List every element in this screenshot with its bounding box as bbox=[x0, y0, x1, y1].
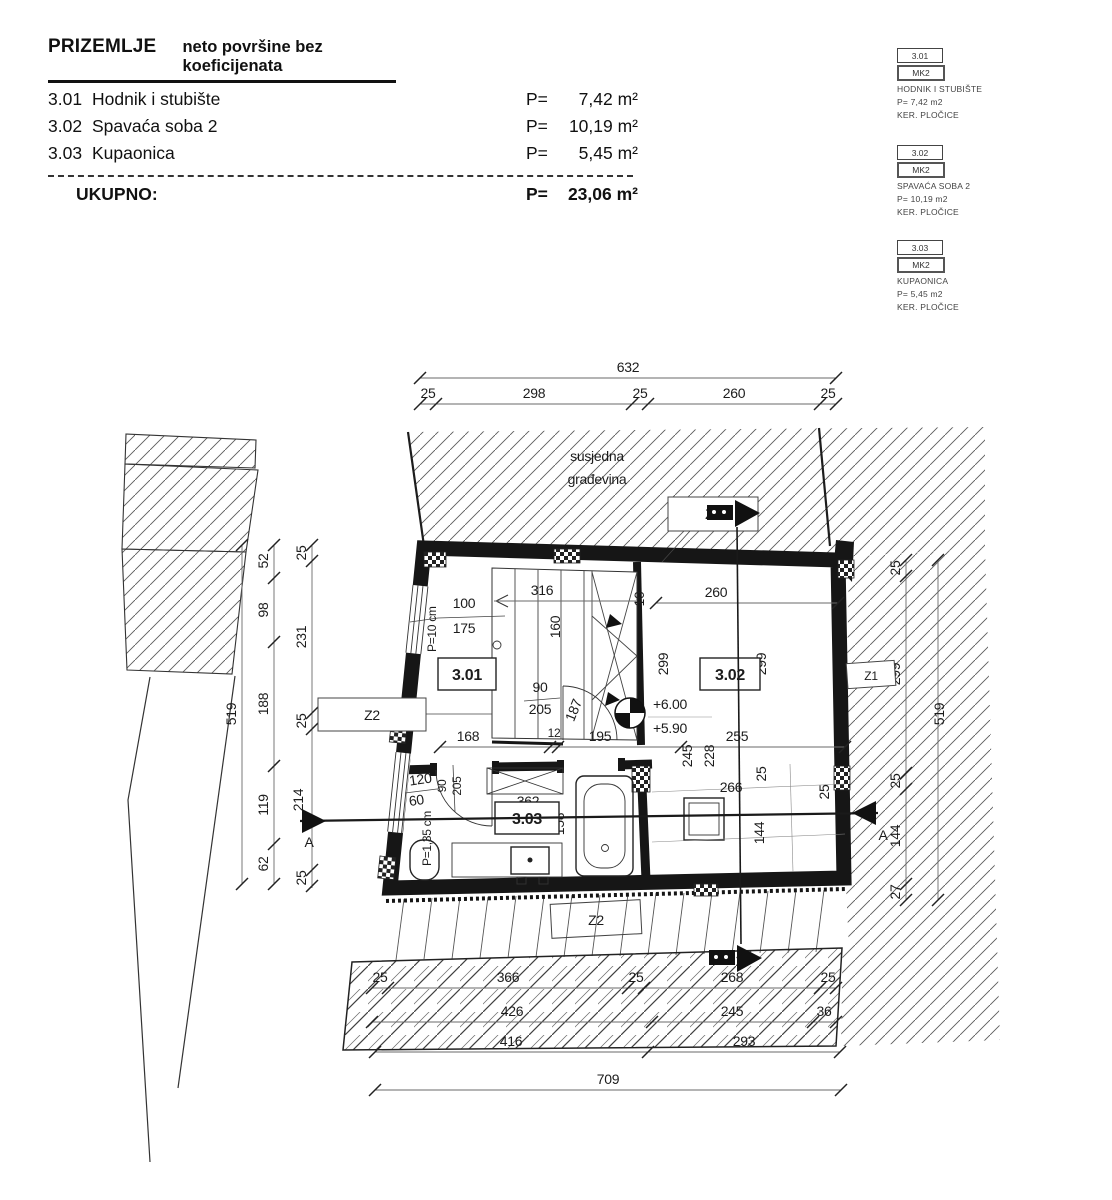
room-label-302: 3.02 bbox=[715, 667, 745, 684]
dim: 255 bbox=[726, 728, 749, 744]
dim: 298 bbox=[523, 385, 546, 401]
neighbor-building-hatch-top bbox=[408, 427, 985, 557]
dim: 25 bbox=[887, 560, 903, 575]
dim: 62 bbox=[255, 856, 271, 871]
dim: 426 bbox=[501, 1003, 524, 1019]
dim: 144 bbox=[887, 824, 903, 847]
door2-height: 205 bbox=[450, 776, 464, 796]
boundary-line-a bbox=[128, 677, 150, 1162]
dim: 25 bbox=[887, 773, 903, 788]
dim: 12 bbox=[548, 726, 561, 740]
dim: 119 bbox=[255, 794, 271, 816]
interior-wall bbox=[492, 766, 563, 767]
marker-z1-right: Z1 bbox=[864, 669, 878, 683]
dim: 195 bbox=[589, 728, 612, 744]
dim-stair-wall: 10 bbox=[631, 591, 647, 606]
floor-plan: susjedna građevina bbox=[0, 0, 1112, 1200]
dim: 25 bbox=[633, 385, 648, 401]
dim: 228 bbox=[701, 744, 717, 767]
dim: 25 bbox=[421, 385, 436, 401]
neighbor-building-hatch-left2 bbox=[122, 464, 258, 552]
dim: 168 bbox=[457, 728, 480, 744]
dim: 25 bbox=[753, 766, 769, 781]
faucet bbox=[528, 858, 533, 863]
dim: 25 bbox=[821, 969, 836, 985]
boundary-line-b bbox=[178, 676, 235, 1088]
dim: 245 bbox=[721, 1003, 744, 1019]
dim: 25 bbox=[293, 870, 309, 885]
adjacent-parcel-hatch-right bbox=[841, 548, 1000, 1046]
neighbor-building-hatch-left3 bbox=[122, 549, 246, 674]
drawing-sheet: PRIZEMLJE neto površine bez koeficijenat… bbox=[0, 0, 1112, 1200]
ground-hatch-strip bbox=[343, 948, 842, 1050]
dim: 52 bbox=[255, 553, 271, 568]
dim-stair-width: 160 bbox=[547, 615, 563, 638]
marker-z2: Z2 bbox=[364, 707, 380, 723]
section-label-a: A bbox=[878, 827, 888, 843]
neighbor-building-hatch-left1 bbox=[125, 434, 256, 468]
dim: 188 bbox=[255, 692, 271, 715]
dim: 293 bbox=[733, 1033, 756, 1049]
dim: 416 bbox=[500, 1033, 523, 1049]
neighbor-label-line2: građevina bbox=[568, 471, 627, 487]
door2-width: 90 bbox=[435, 779, 449, 792]
neighbor-label-line1: susjedna bbox=[570, 448, 624, 464]
win1-parapet: P=10 cm bbox=[425, 606, 439, 652]
dim: 231 bbox=[293, 625, 309, 648]
dim-top-total: 632 bbox=[617, 359, 640, 375]
dim: 25 bbox=[373, 969, 388, 985]
level-top: +6.00 bbox=[653, 696, 687, 712]
door1-height: 205 bbox=[529, 701, 552, 717]
dim-302-width: 260 bbox=[705, 584, 728, 600]
dim: 98 bbox=[255, 602, 271, 617]
door-jamb bbox=[618, 758, 625, 771]
dim: 36 bbox=[817, 1003, 832, 1019]
dim: 25 bbox=[293, 545, 309, 560]
win2-height: 60 bbox=[408, 791, 426, 809]
dim: 25 bbox=[816, 784, 832, 799]
dim: 27 bbox=[887, 884, 903, 899]
dim: 245 bbox=[679, 744, 695, 767]
win1-width: 100 bbox=[453, 595, 476, 611]
dim: 25 bbox=[293, 713, 309, 728]
marker-z2-bottom: Z2 bbox=[588, 912, 604, 928]
section-arrow-a-left bbox=[302, 809, 326, 833]
dim: 25 bbox=[821, 385, 836, 401]
dim: 268 bbox=[721, 969, 744, 985]
level-bottom: +5.90 bbox=[653, 720, 687, 736]
door1-width: 90 bbox=[533, 679, 548, 695]
room-label-301: 3.01 bbox=[452, 667, 482, 684]
room-label-303: 3.03 bbox=[512, 811, 542, 828]
dim-302-depth: 299 bbox=[655, 652, 671, 675]
section-label-a: A bbox=[304, 834, 314, 850]
dim-stair-run: 316 bbox=[531, 582, 554, 598]
dim: 260 bbox=[723, 385, 746, 401]
dim-left-total: 519 bbox=[223, 702, 239, 725]
dim: 214 bbox=[290, 788, 306, 811]
dim-bottom-total: 709 bbox=[597, 1071, 620, 1087]
dim: 366 bbox=[497, 969, 520, 985]
win2-width: 120 bbox=[408, 769, 433, 788]
dim-terrace-depth: 144 bbox=[751, 821, 767, 844]
dim-right-total: 519 bbox=[931, 702, 947, 725]
dim: 25 bbox=[629, 969, 644, 985]
win1-height: 175 bbox=[453, 620, 476, 636]
